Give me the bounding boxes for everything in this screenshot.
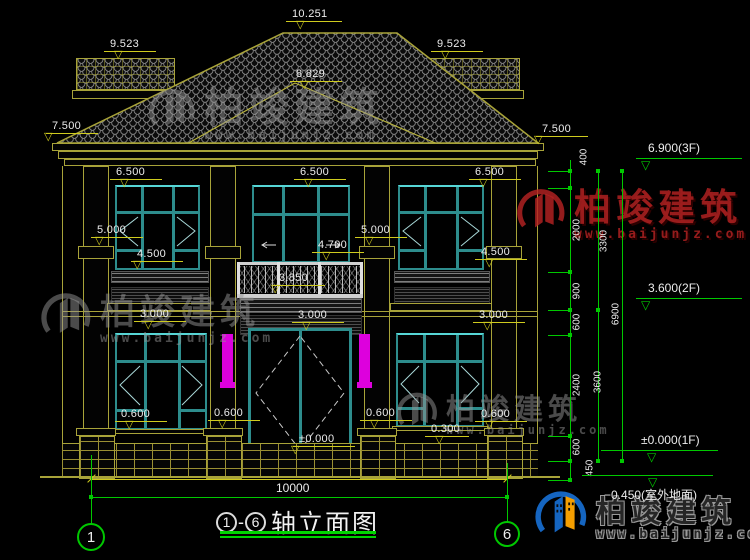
axis-grid-layer: 16 (0, 0, 750, 560)
axis-start-bubble: 1 (216, 512, 237, 533)
axis-node-dot (89, 495, 93, 499)
axis-bubble-number: 6 (503, 526, 511, 543)
cad-elevation-drawing: 柏竣建筑www.baijunjz.com柏竣建筑www.baijunjz.com… (0, 0, 750, 560)
axis-line (91, 455, 92, 524)
axis-end-bubble: 6 (245, 512, 266, 533)
axis-connector-line (91, 497, 507, 498)
axis-node-dot (505, 495, 509, 499)
title-dash: - (238, 512, 244, 532)
title-underline-2 (220, 536, 376, 538)
axis-bubble-1: 1 (77, 523, 105, 551)
title-underline-1 (220, 531, 376, 534)
axis-line (507, 463, 508, 522)
axis-bubble-6: 6 (494, 521, 520, 547)
axis-bubble-number: 1 (87, 529, 95, 546)
drawing-title: 1-6轴立面图 (216, 504, 379, 540)
